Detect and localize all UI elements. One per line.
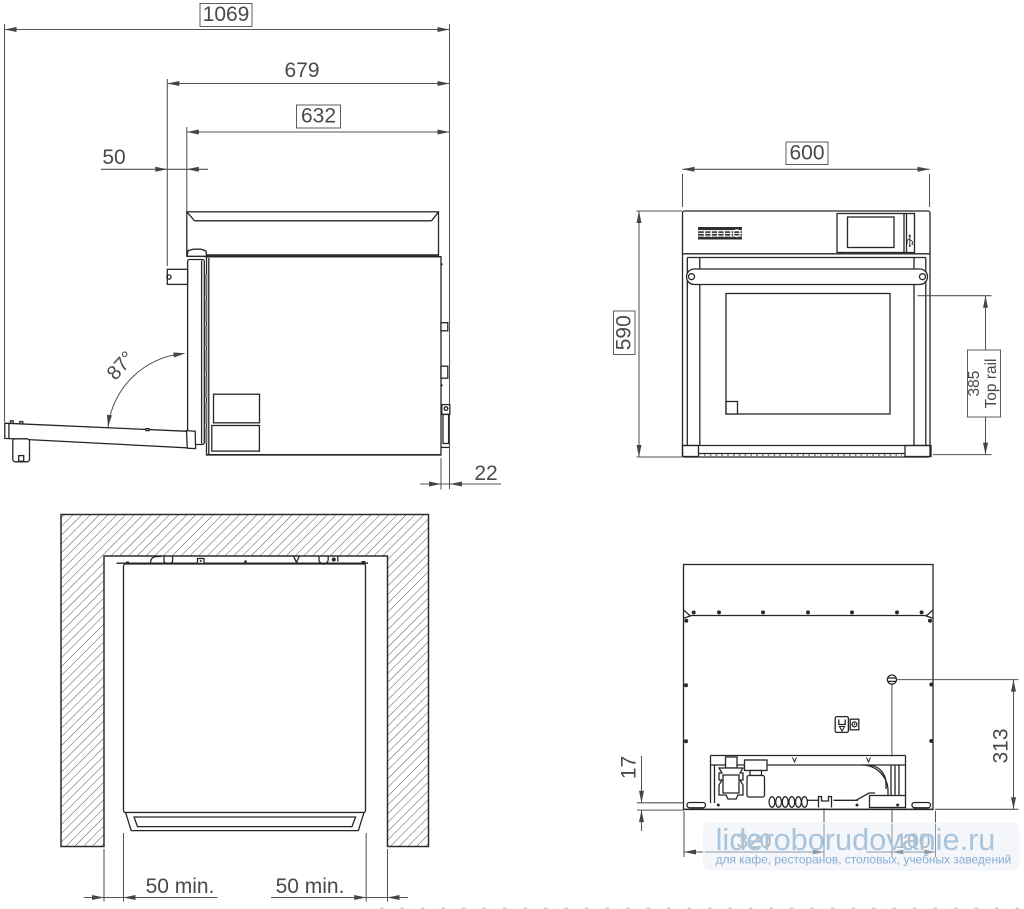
svg-text:Top rail: Top rail (983, 359, 1000, 409)
svg-text:87°: 87° (103, 347, 140, 384)
svg-text:50: 50 (102, 146, 125, 169)
svg-text:590: 590 (613, 315, 636, 350)
svg-text:1069: 1069 (203, 3, 250, 26)
svg-text:679: 679 (284, 59, 319, 82)
svg-text:385: 385 (966, 371, 983, 397)
svg-text:22: 22 (474, 462, 497, 485)
svg-text:50 min.: 50 min. (146, 875, 215, 898)
svg-text:600: 600 (789, 142, 824, 165)
svg-text:для кафе, ресторанов, столовых: для кафе, ресторанов, столовых, учебных … (716, 853, 1012, 867)
svg-text:632: 632 (301, 105, 336, 128)
svg-text:313: 313 (990, 728, 1013, 763)
svg-text:17: 17 (618, 756, 641, 779)
svg-text:50 min.: 50 min. (276, 875, 345, 898)
